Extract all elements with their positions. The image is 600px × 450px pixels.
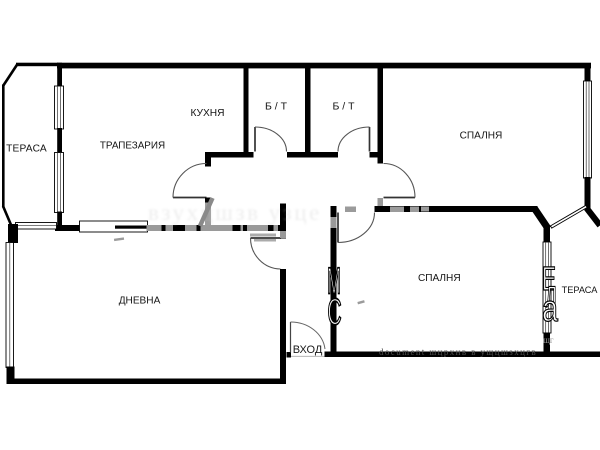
svg-text:ТЕРАСА: ТЕРАСА	[562, 285, 599, 295]
svg-text:ДНЕВНА: ДНЕВНА	[119, 296, 161, 307]
svg-text:С: С	[327, 292, 341, 333]
svg-text:document шцрхнв в ущцшзхцгв: document шцрхнв в ущцшзхцгв	[379, 347, 537, 357]
svg-text:ТЕРАСА: ТЕРАСА	[6, 144, 47, 155]
svg-text:а: а	[542, 287, 559, 329]
svg-text:КУХНЯ: КУХНЯ	[190, 108, 224, 119]
svg-text:СПАЛНЯ: СПАЛНЯ	[460, 131, 503, 142]
svg-text:Б / Т: Б / Т	[265, 101, 288, 113]
svg-text:ТРАПЕЗАРИЯ: ТРАПЕЗАРИЯ	[100, 140, 165, 151]
svg-text:Б / Т: Б / Т	[332, 101, 355, 113]
svg-text:щг: щг	[543, 335, 554, 345]
svg-text:взухцшзв узце: взухцшзв узце	[148, 200, 322, 225]
svg-text:ВХОД: ВХОД	[293, 344, 323, 356]
svg-text:СПАЛНЯ: СПАЛНЯ	[418, 273, 461, 284]
